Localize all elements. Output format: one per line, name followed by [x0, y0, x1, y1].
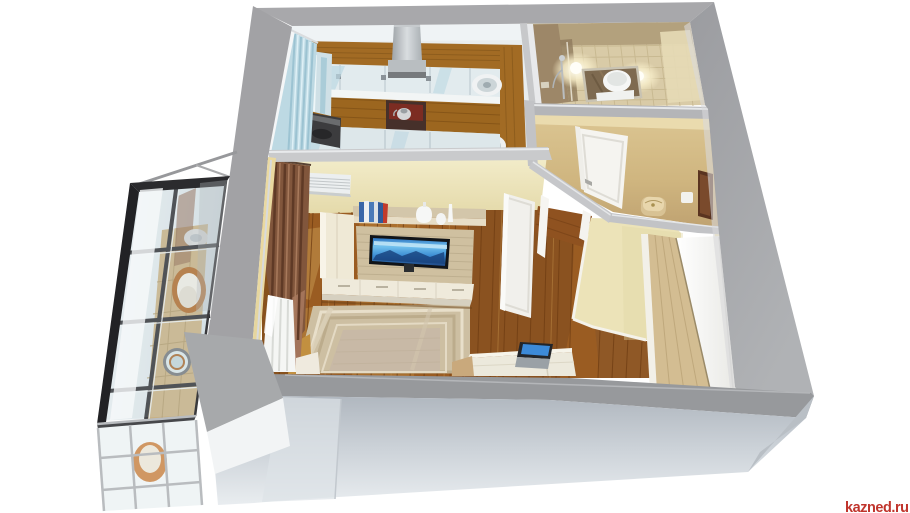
svg-text:kazned.ru: kazned.ru — [845, 500, 909, 513]
